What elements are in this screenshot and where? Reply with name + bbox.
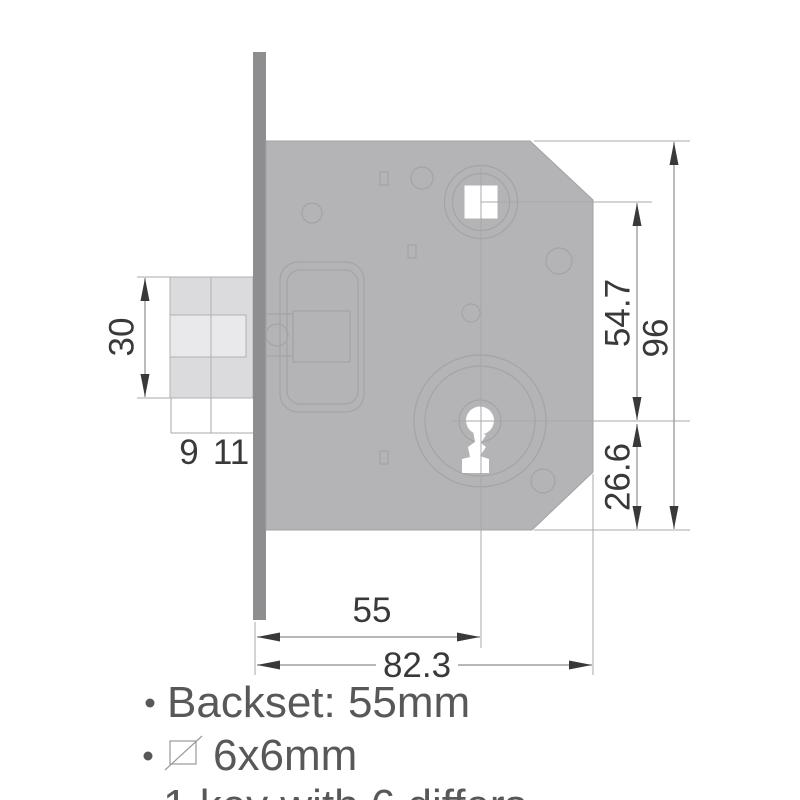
arrowhead-icon bbox=[670, 142, 679, 165]
bullet-icon bbox=[144, 752, 153, 761]
dim-backset-label: 55 bbox=[353, 591, 392, 630]
notes-list: Backset: 55mm 6x6mm 1 key with 6 differs bbox=[144, 678, 527, 800]
lock-body bbox=[266, 141, 593, 530]
dim-spindle-to-keyhole: 54.7 bbox=[599, 203, 642, 420]
latch-bolt-core bbox=[170, 315, 246, 357]
dim-latch-segments: 9 11 bbox=[171, 398, 253, 472]
technical-drawing-canvas: 30 9 11 55 82.3 bbox=[0, 0, 800, 800]
arrowhead-icon bbox=[257, 661, 280, 670]
dim-body-height-label: 96 bbox=[637, 319, 676, 358]
note-backset: Backset: 55mm bbox=[167, 678, 470, 727]
dim-latch-height: 30 bbox=[103, 277, 171, 398]
dim-latch-back-label: 11 bbox=[213, 433, 249, 472]
dim-latch-front-label: 9 bbox=[179, 433, 198, 472]
arrowhead-icon bbox=[633, 397, 642, 420]
faceplate bbox=[253, 52, 266, 620]
dim-latch-height-label: 30 bbox=[103, 318, 142, 357]
arrowhead-icon bbox=[633, 203, 642, 226]
lock-drawing-svg: 30 9 11 55 82.3 bbox=[0, 0, 800, 800]
arrowhead-icon bbox=[457, 633, 480, 642]
arrowhead-icon bbox=[569, 661, 592, 670]
bullet-icon bbox=[146, 699, 155, 708]
note-keys: 1 key with 6 differs bbox=[163, 781, 527, 800]
dim-keyhole-to-bottom: 26.6 bbox=[599, 424, 642, 529]
dim-keyhole-to-bottom-label: 26.6 bbox=[599, 443, 638, 511]
square-section-icon bbox=[165, 736, 202, 770]
arrowhead-icon bbox=[257, 633, 280, 642]
arrowhead-icon bbox=[141, 374, 150, 397]
dim-spindle-to-keyhole-label: 54.7 bbox=[599, 279, 638, 347]
arrowhead-icon bbox=[670, 506, 679, 529]
arrowhead-icon bbox=[141, 278, 150, 301]
note-spindle: 6x6mm bbox=[213, 731, 357, 780]
